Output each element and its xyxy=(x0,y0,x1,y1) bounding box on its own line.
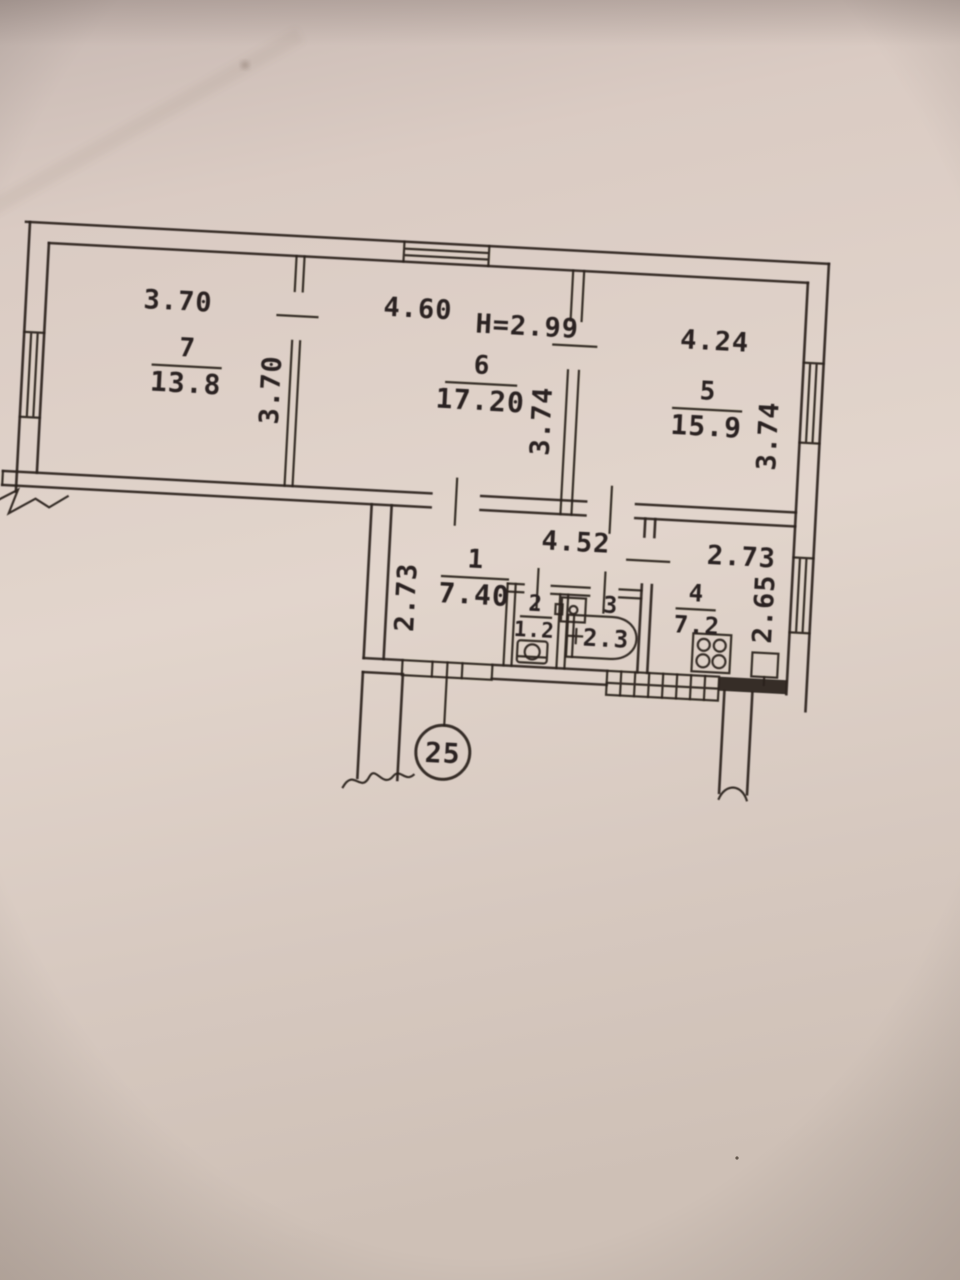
kitchen-area: 7.2 xyxy=(673,610,721,640)
room5-number: 5 xyxy=(699,376,717,407)
dim-room5-width: 4.24 xyxy=(679,324,750,359)
bath-area: 2.3 xyxy=(582,624,630,654)
dim-room5-depth: 3.74 xyxy=(751,401,786,472)
floor-plan-canvas: 25 xyxy=(0,0,960,1280)
ceiling-height-label: H=2.99 xyxy=(475,308,580,344)
dim-kitchen-depth: 2.65 xyxy=(747,574,782,645)
dim-room7-width: 3.70 xyxy=(143,284,214,319)
apartment-number: 25 xyxy=(424,735,461,770)
room7-area: 13.8 xyxy=(149,365,222,402)
dim-hall-width: 4.52 xyxy=(541,525,612,560)
dim-kitchen-width: 2.73 xyxy=(706,540,777,575)
room5-area: 15.9 xyxy=(670,408,743,445)
photo-vignette xyxy=(0,0,960,1280)
hall-area: 7.40 xyxy=(438,576,511,613)
wc-number: 2 xyxy=(528,592,544,618)
dim-room6-width: 4.60 xyxy=(383,292,454,327)
room6-number: 6 xyxy=(473,350,491,381)
dim-room7-depth: 3.70 xyxy=(254,355,289,426)
hall-number: 1 xyxy=(467,544,485,575)
wc-area: 1.2 xyxy=(513,617,555,643)
dim-room6-depth: 3.74 xyxy=(524,386,559,457)
paper-speck xyxy=(242,62,248,68)
kitchen-number: 4 xyxy=(688,579,705,608)
dim-hall-depth: 2.73 xyxy=(389,562,424,633)
bath-number: 3 xyxy=(603,593,619,620)
mid-wall-left-cap xyxy=(2,471,3,485)
room6-area: 17.20 xyxy=(435,381,526,419)
photo-of-floor-plan: 25 xyxy=(0,0,960,1280)
room7-number: 7 xyxy=(178,333,196,364)
paper-speck-small xyxy=(735,1156,738,1159)
